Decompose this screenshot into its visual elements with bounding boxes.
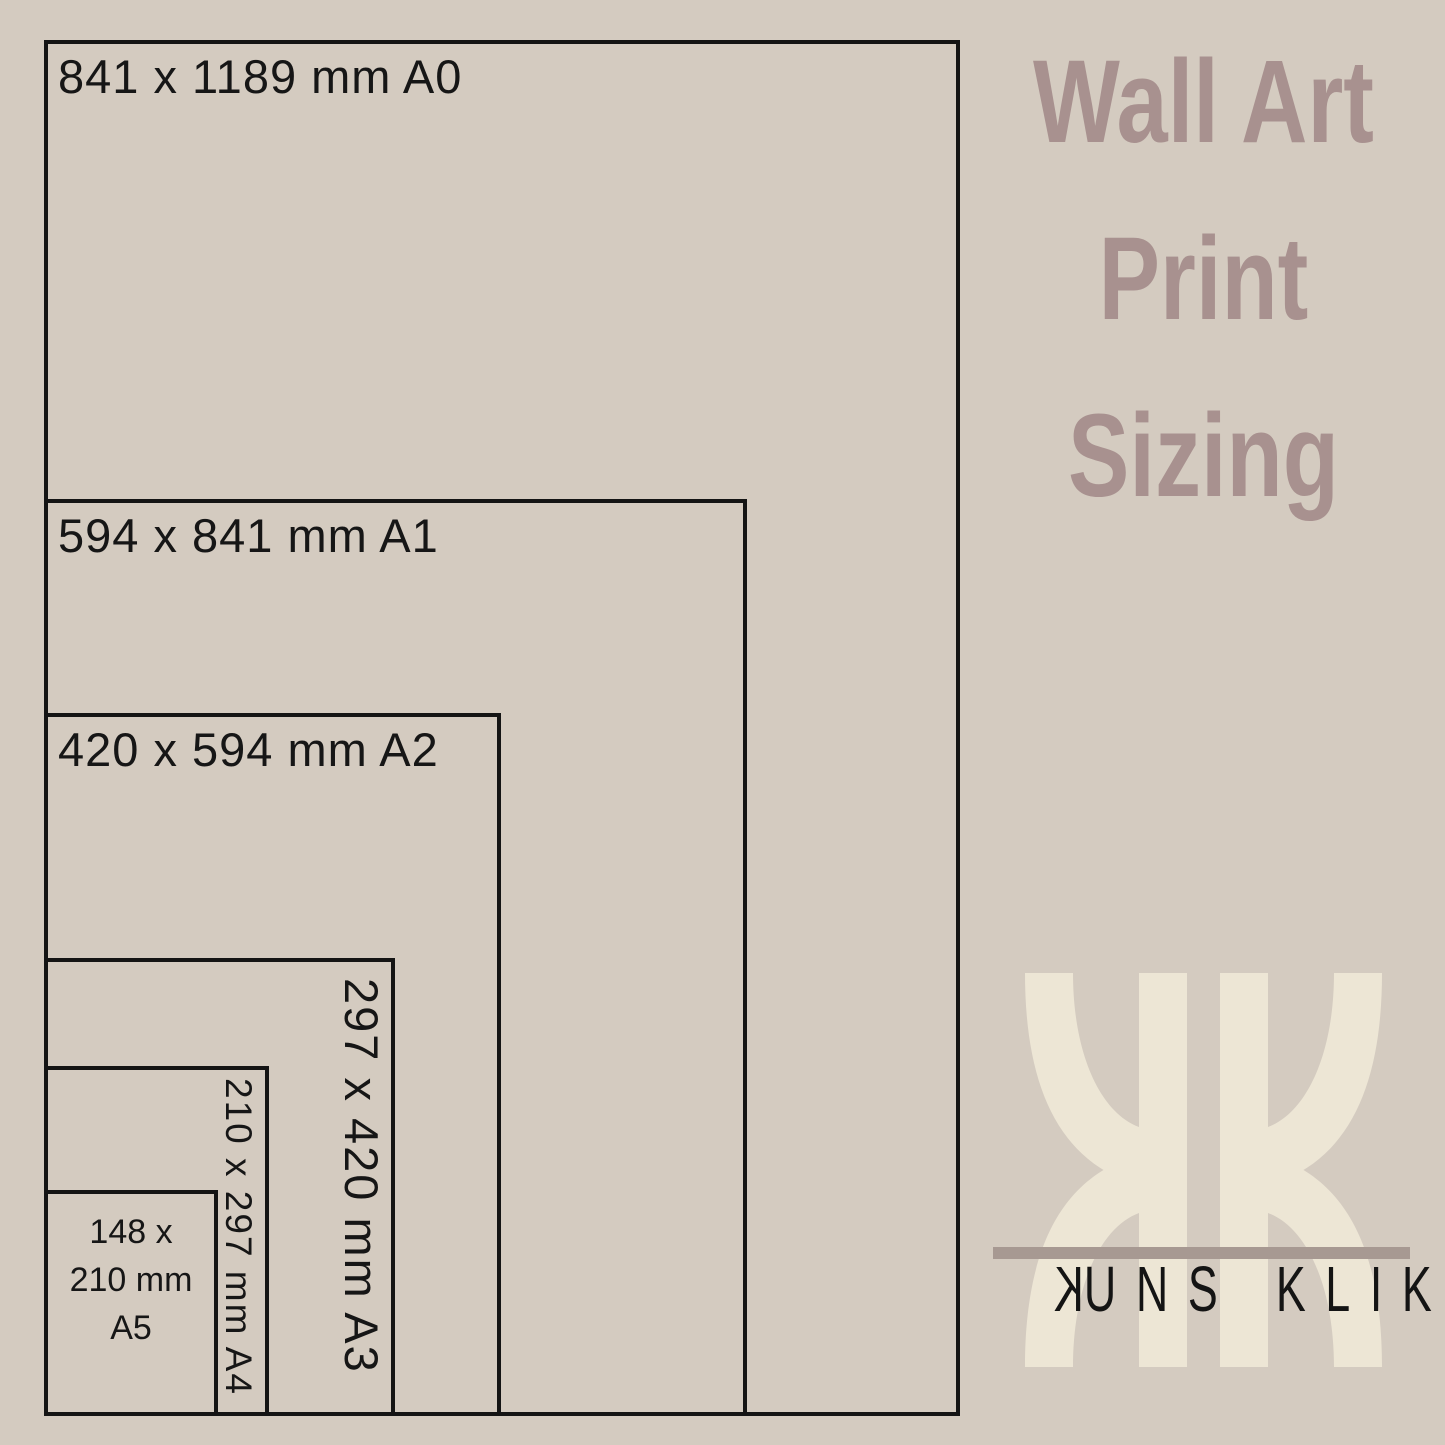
- size-label-a1: 594 x 841 mm A1: [58, 507, 439, 566]
- title-line-3: Sizing: [1015, 368, 1392, 545]
- size-label-a5-line3: A5: [110, 1304, 152, 1352]
- wordmark-second-word: KLIK: [1276, 1253, 1445, 1325]
- size-label-a3: 297 x 420 mm A3: [334, 978, 389, 1374]
- page-title: Wall Art Print Sizing: [962, 14, 1445, 545]
- title-line-1: Wall Art: [1015, 14, 1392, 191]
- title-line-2: Print: [1015, 191, 1392, 368]
- size-label-a4: 210 x 297 mm A4: [217, 1078, 259, 1396]
- wordmark-mirrored-k: K: [1034, 1256, 1083, 1322]
- size-label-a5-line1: 148 x: [89, 1208, 172, 1256]
- wall-art-print-sizing-infographic: 841 x 1189 mm A0 594 x 841 mm A1 420 x 5…: [0, 0, 1445, 1445]
- size-label-a5: 148 x 210 mm A5: [48, 1208, 214, 1352]
- size-label-a0: 841 x 1189 mm A0: [58, 48, 462, 107]
- brand-wordmark: KUNSKLIK: [1034, 1256, 1372, 1322]
- size-label-a2: 420 x 594 mm A2: [58, 721, 439, 780]
- size-box-a5: 148 x 210 mm A5: [44, 1190, 218, 1416]
- wordmark-first-word-rest: UNS: [1084, 1253, 1237, 1325]
- size-label-a5-line2: 210 mm: [70, 1256, 193, 1304]
- right-panel: Wall Art Print Sizing KU: [962, 0, 1445, 1445]
